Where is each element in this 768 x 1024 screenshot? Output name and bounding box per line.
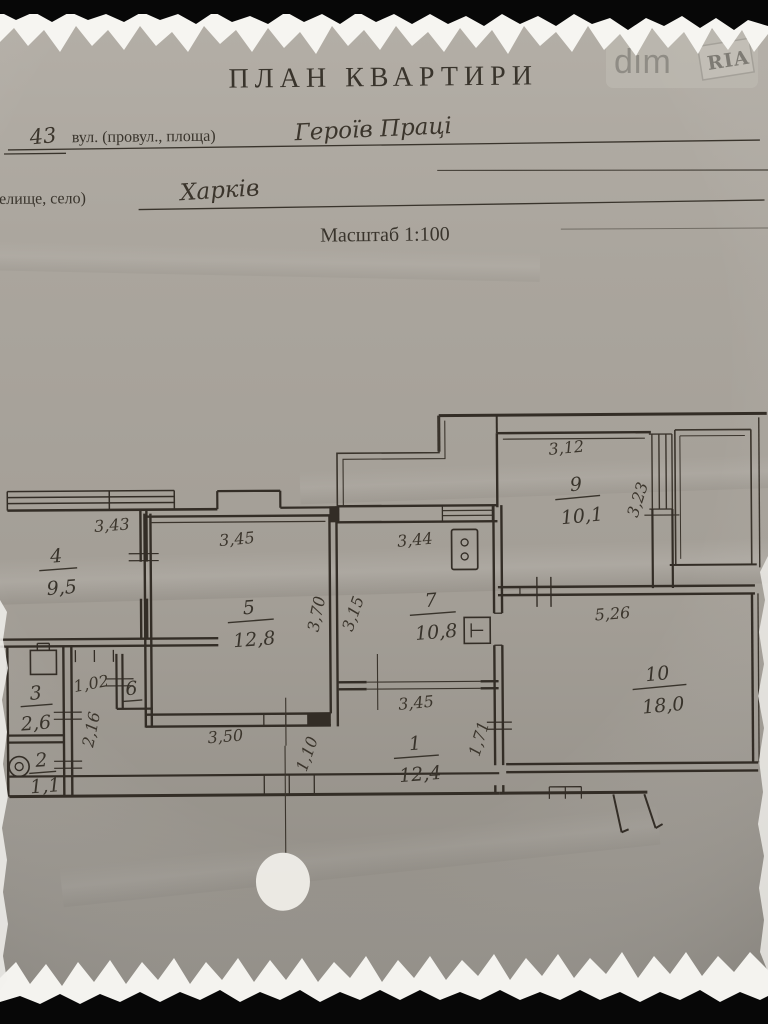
room-9-area: 10,1 xyxy=(560,503,604,529)
street-label: вул. (провул., площа) xyxy=(72,128,216,147)
room-3-area: 2,6 xyxy=(19,711,52,735)
dim-below-room9: 5,26 xyxy=(594,603,631,625)
room-4-area: 9,5 xyxy=(46,576,78,600)
settlement-value: Харків xyxy=(177,175,260,206)
room-5-number: 5 xyxy=(242,597,256,620)
room-4-number: 4 xyxy=(48,545,63,568)
room-3-number: 3 xyxy=(29,682,43,705)
room-5-area: 12,8 xyxy=(232,627,276,652)
dim-top-room7: 3,44 xyxy=(396,529,433,551)
document-canvas: dim RIA ПЛАН КВАРТИРИ 43 вул. (провул., … xyxy=(0,0,768,1024)
scale-text: Масштаб 1:100 xyxy=(320,223,450,246)
room-2-number: 2 xyxy=(33,749,48,772)
room-9-number: 9 xyxy=(569,473,583,496)
room-1-area: 12,4 xyxy=(398,762,442,787)
watermark-dim-text: dim xyxy=(614,43,672,81)
dim-top-room9: 3,12 xyxy=(548,437,585,459)
room-10-number: 10 xyxy=(644,662,670,686)
house-number-underline xyxy=(4,153,66,154)
room-2-area: 1,1 xyxy=(29,774,61,798)
floor-plan-photo: dim RIA ПЛАН КВАРТИРИ 43 вул. (провул., … xyxy=(0,0,768,1024)
room-1-number: 1 xyxy=(408,732,422,755)
dim-bottom-room5: 3,50 xyxy=(207,726,244,748)
erased-stamp-spot xyxy=(256,853,310,911)
room-6-number: 6 xyxy=(125,677,139,700)
dim-top-room4: 3,43 xyxy=(93,514,130,536)
room-10-area: 18,0 xyxy=(641,693,685,719)
room-7-area: 10,8 xyxy=(414,620,458,645)
settlement-label: (селище, село) xyxy=(0,190,86,208)
house-number-value: 43 xyxy=(28,123,58,150)
page-title: ПЛАН КВАРТИРИ xyxy=(228,60,538,94)
dim-top-room5: 3,45 xyxy=(218,528,255,550)
dim-top-room1: 3,45 xyxy=(397,692,434,714)
